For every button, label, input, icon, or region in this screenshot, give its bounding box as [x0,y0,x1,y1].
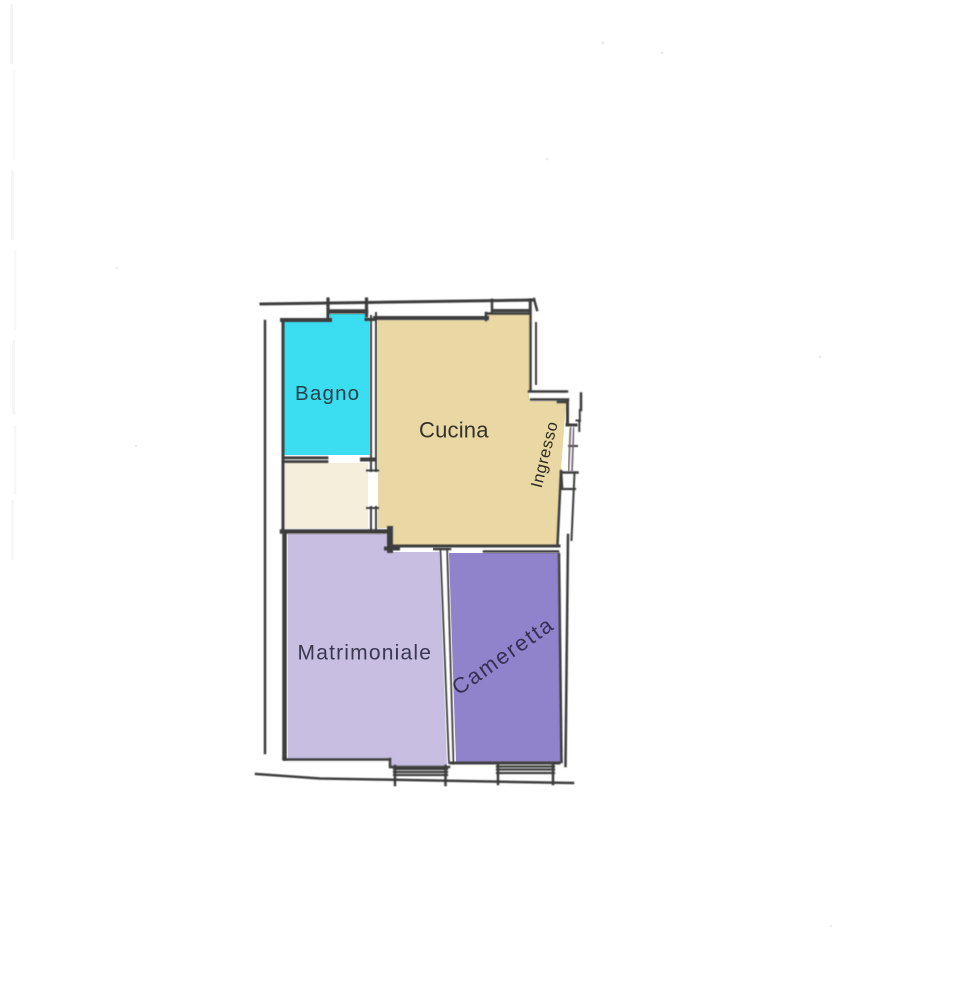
svg-text:Bagno: Bagno [295,382,360,405]
svg-text:Matrimoniale: Matrimoniale [298,642,433,665]
svg-text:Cucina: Cucina [419,418,489,443]
